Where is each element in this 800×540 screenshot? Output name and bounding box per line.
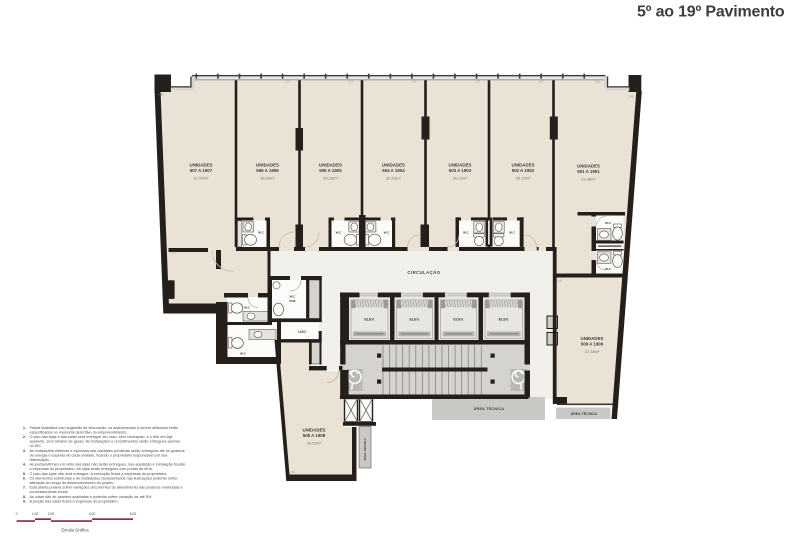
svg-text:A junção das salas ficará a ex: A junção das salas ficará a expensas do … [30, 499, 119, 503]
svg-text:LIXO: LIXO [298, 330, 306, 334]
svg-text:ÁREA TÉCNICA: ÁREA TÉCNICA [474, 406, 505, 411]
svg-text:2,00: 2,00 [48, 512, 55, 516]
svg-text:PNE: PNE [289, 299, 295, 303]
svg-text:5.: 5. [23, 472, 26, 476]
svg-text:30,16m²: 30,16m² [323, 176, 338, 181]
svg-text:1.: 1. [23, 426, 26, 430]
svg-text:Escala Gráfica: Escala Gráfica [61, 528, 89, 533]
svg-text:1,00: 1,00 [32, 512, 39, 516]
svg-text:alteração ao longo do desenvol: alteração ao longo do desenvolvimento do… [30, 481, 115, 485]
svg-text:501 A 1901: 501 A 1901 [577, 169, 600, 174]
svg-text:concessionárias locais.: concessionárias locais. [30, 490, 69, 494]
svg-text:O piso das lojas e das salas s: O piso das lojas e das salas será entreg… [30, 435, 173, 439]
svg-text:504 A 1904: 504 A 1904 [382, 168, 405, 173]
svg-text:503 A 1903: 503 A 1903 [449, 168, 472, 173]
svg-text:ELEV.: ELEV. [499, 317, 509, 321]
svg-text:ELEV.: ELEV. [364, 317, 374, 321]
svg-text:1.26: 1.26 [171, 251, 177, 255]
svg-text:W.C: W.C [258, 231, 264, 235]
svg-text:1.40: 1.40 [557, 279, 563, 283]
svg-text:508 A 1908: 508 A 1908 [303, 433, 326, 438]
svg-text:2.: 2. [23, 435, 26, 439]
svg-text:W.C: W.C [290, 295, 296, 299]
svg-text:5º ao 19º Pavimento: 5º ao 19º Pavimento [637, 4, 785, 21]
svg-text:aparente, sem rebaixo de gesso: aparente, sem rebaixo de gesso. As insta… [30, 440, 181, 444]
svg-text:57,00m²: 57,00m² [194, 176, 209, 181]
svg-text:de energia e esperas de cada u: de energia e esperas de cada unidade, fi… [30, 453, 169, 457]
svg-text:1.27: 1.27 [348, 80, 354, 84]
svg-text:As cotas são de paredes acabad: As cotas são de paredes acabadas e poder… [30, 495, 153, 499]
svg-text:no WC.: no WC. [30, 444, 43, 448]
svg-text:9.: 9. [23, 499, 26, 503]
svg-text:502 A 1902: 502 A 1902 [512, 168, 535, 173]
svg-text:W.C: W.C [605, 267, 611, 271]
svg-text:ELEV.: ELEV. [409, 317, 419, 321]
svg-text:30,16m²: 30,16m² [386, 176, 401, 181]
svg-text:W.C: W.C [336, 231, 342, 235]
svg-text:1.27: 1.27 [538, 80, 544, 84]
svg-text:6,00: 6,00 [130, 512, 137, 516]
svg-text:W.C: W.C [384, 231, 390, 235]
svg-text:1.48: 1.48 [629, 95, 635, 99]
svg-text:O piso das lojas não será entr: O piso das lojas não será entregue, a ex… [30, 472, 168, 476]
svg-text:1.27: 1.27 [285, 80, 291, 84]
svg-text:7.: 7. [23, 486, 26, 490]
svg-text:4.45: 4.45 [158, 93, 164, 97]
svg-text:3.: 3. [23, 449, 26, 453]
svg-text:ELEV.: ELEV. [453, 317, 463, 321]
svg-text:Os elementos estruturais e de: Os elementos estruturais e de instalaçõe… [30, 476, 179, 480]
svg-text:ÁREA TÉCNICA: ÁREA TÉCNICA [571, 411, 598, 416]
svg-text:W.C: W.C [605, 221, 611, 225]
svg-text:1.27: 1.27 [411, 80, 417, 84]
svg-text:Planta ilustrativa com sugestã: Planta ilustrativa com sugestão de decor… [30, 426, 179, 430]
svg-text:38,09m²: 38,09m² [260, 176, 275, 181]
svg-text:1.10: 1.10 [595, 80, 601, 84]
svg-text:507 A 1907: 507 A 1907 [190, 168, 213, 173]
svg-text:ÁREA TÉCNICA: ÁREA TÉCNICA [362, 437, 367, 460]
svg-text:especificados no memorial desc: especificados no memorial descritivo do … [30, 430, 128, 434]
svg-text:CIRCULAÇÃO: CIRCULAÇÃO [407, 270, 440, 275]
svg-text:1.51: 1.51 [290, 470, 296, 474]
svg-text:1.27: 1.27 [475, 80, 481, 84]
svg-text:4,00: 4,00 [89, 512, 96, 516]
svg-text:As instalações elétricas e esp: As instalações elétricas e especiais das… [30, 449, 185, 453]
svg-text:8.: 8. [23, 495, 26, 499]
svg-text:505 A 1905: 505 A 1905 [319, 168, 342, 173]
svg-text:41,38m²: 41,38m² [581, 177, 596, 182]
svg-text:506 A 1906: 506 A 1906 [256, 168, 279, 173]
svg-text:30,15m²: 30,15m² [453, 176, 468, 181]
svg-text:6.: 6. [23, 476, 26, 480]
svg-text:4.: 4. [23, 463, 26, 467]
svg-text:a expensas do proprietário. As: a expensas do proprietário. As lojas ser… [30, 467, 154, 471]
svg-text:30,15m²: 30,15m² [516, 176, 531, 181]
svg-text:W.C: W.C [509, 231, 515, 235]
svg-text:27,38m²: 27,38m² [585, 349, 600, 354]
svg-text:W.C: W.C [463, 231, 469, 235]
svg-text:W.C: W.C [240, 352, 246, 356]
svg-text:34,53m²: 34,53m² [307, 441, 322, 446]
svg-text:As portas/vitrines em vidro da: As portas/vitrines em vidro das lojas nã… [30, 463, 186, 467]
svg-text:Esta planta poderá sofrer vari: Esta planta poderá sofrer variações deco… [30, 486, 183, 490]
svg-text:509 A 1909: 509 A 1909 [581, 341, 604, 346]
svg-text:W.C: W.C [244, 306, 250, 310]
svg-text:0: 0 [16, 512, 18, 516]
svg-text:distribuição.: distribuição. [30, 458, 50, 462]
